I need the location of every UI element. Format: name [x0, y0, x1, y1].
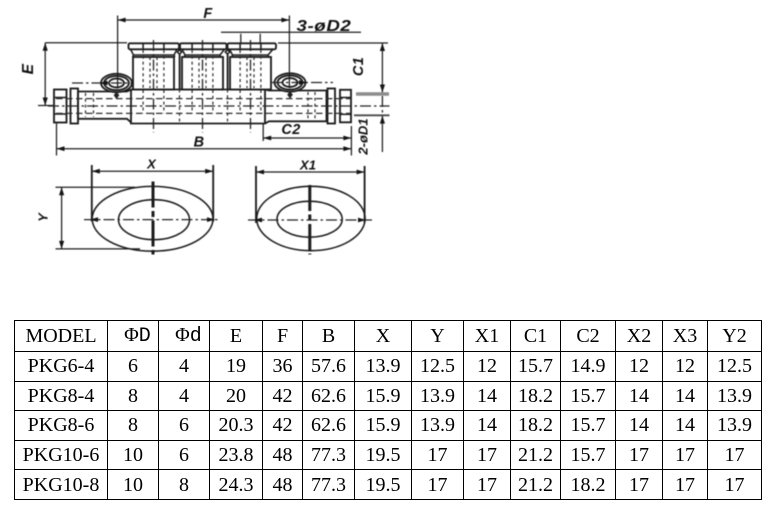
svg-text:X: X: [146, 157, 157, 172]
svg-text:C2: C2: [281, 122, 300, 138]
svg-text:E: E: [20, 63, 37, 74]
svg-text:3-øD2: 3-øD2: [297, 16, 352, 34]
svg-text:Y: Y: [36, 212, 51, 222]
svg-text:B: B: [194, 135, 205, 151]
svg-text:C1: C1: [351, 57, 367, 76]
svg-text:X1: X1: [299, 158, 316, 173]
svg-text:2-øD1: 2-øD1: [356, 118, 371, 155]
svg-text:F: F: [203, 6, 213, 22]
